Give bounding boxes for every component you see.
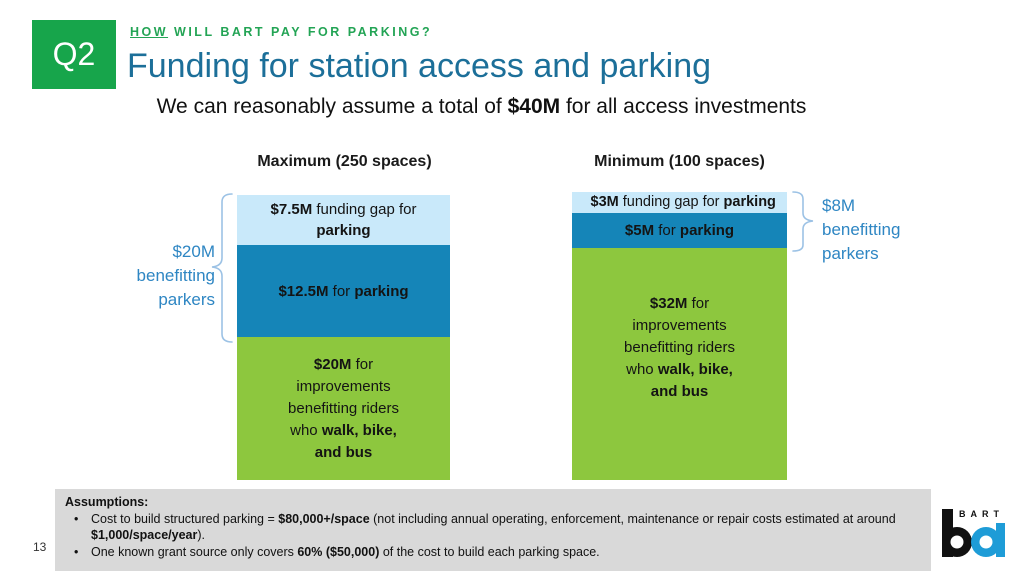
segment-funding-gap-min: $3M funding gap for parking (572, 192, 787, 213)
q2-badge: Q2 (32, 20, 116, 89)
page-number: 13 (33, 540, 46, 554)
bart-logo-letters: BART (959, 509, 1004, 519)
column-header-minimum: Minimum (100 spaces) (572, 153, 787, 171)
assumptions-heading: Assumptions: (65, 494, 921, 511)
q2-badge-label: Q2 (53, 36, 96, 73)
assumption-bullet-2: • One known grant source only covers 60%… (65, 544, 921, 561)
segment-label: $32M forimprovementsbenefitting riderswh… (624, 293, 735, 403)
assumption-text: Cost to build structured parking = $80,0… (91, 511, 921, 544)
column-header-maximum: Maximum (250 spaces) (237, 153, 452, 171)
right-bracket (791, 190, 817, 254)
slide: Q2 HOW WILL BART PAY FOR PARKING? Fundin… (0, 0, 1023, 576)
segment-funding-gap-max: $7.5M funding gap forparking (237, 195, 450, 245)
bar-maximum: $7.5M funding gap forparking $12.5M for … (237, 195, 450, 480)
bart-logo-icon: BART (936, 497, 1006, 563)
segment-parking-min: $5M for parking (572, 213, 787, 248)
segment-label: $7.5M funding gap forparking (271, 199, 417, 241)
segment-improvements-max: $20M forimprovementsbenefitting riderswh… (237, 337, 450, 480)
annotation-benefitting-parkers-max: $20M benefitting parkers (115, 240, 215, 312)
segment-improvements-min: $32M forimprovementsbenefitting riderswh… (572, 248, 787, 480)
page-title: Funding for station access and parking (127, 47, 711, 86)
bullet-icon: • (65, 544, 91, 561)
segment-label: $5M for parking (625, 220, 734, 241)
subtitle: We can reasonably assume a total of $40M… (0, 95, 963, 119)
assumption-text: One known grant source only covers 60% (… (91, 544, 921, 561)
segment-label: $12.5M for parking (278, 281, 408, 302)
segment-label: $3M funding gap for parking (591, 192, 769, 213)
annotation-benefitting-parkers-min: $8M benefitting parkers (822, 194, 922, 266)
segment-label: $20M forimprovementsbenefitting riderswh… (288, 354, 399, 464)
kicker-heading: HOW WILL BART PAY FOR PARKING? (130, 25, 432, 39)
assumption-bullet-1: • Cost to build structured parking = $80… (65, 511, 921, 544)
bar-minimum: $3M funding gap for parking $5M for park… (572, 192, 787, 480)
bullet-icon: • (65, 511, 91, 544)
assumptions-box: Assumptions: • Cost to build structured … (55, 489, 931, 571)
segment-parking-max: $12.5M for parking (237, 245, 450, 337)
